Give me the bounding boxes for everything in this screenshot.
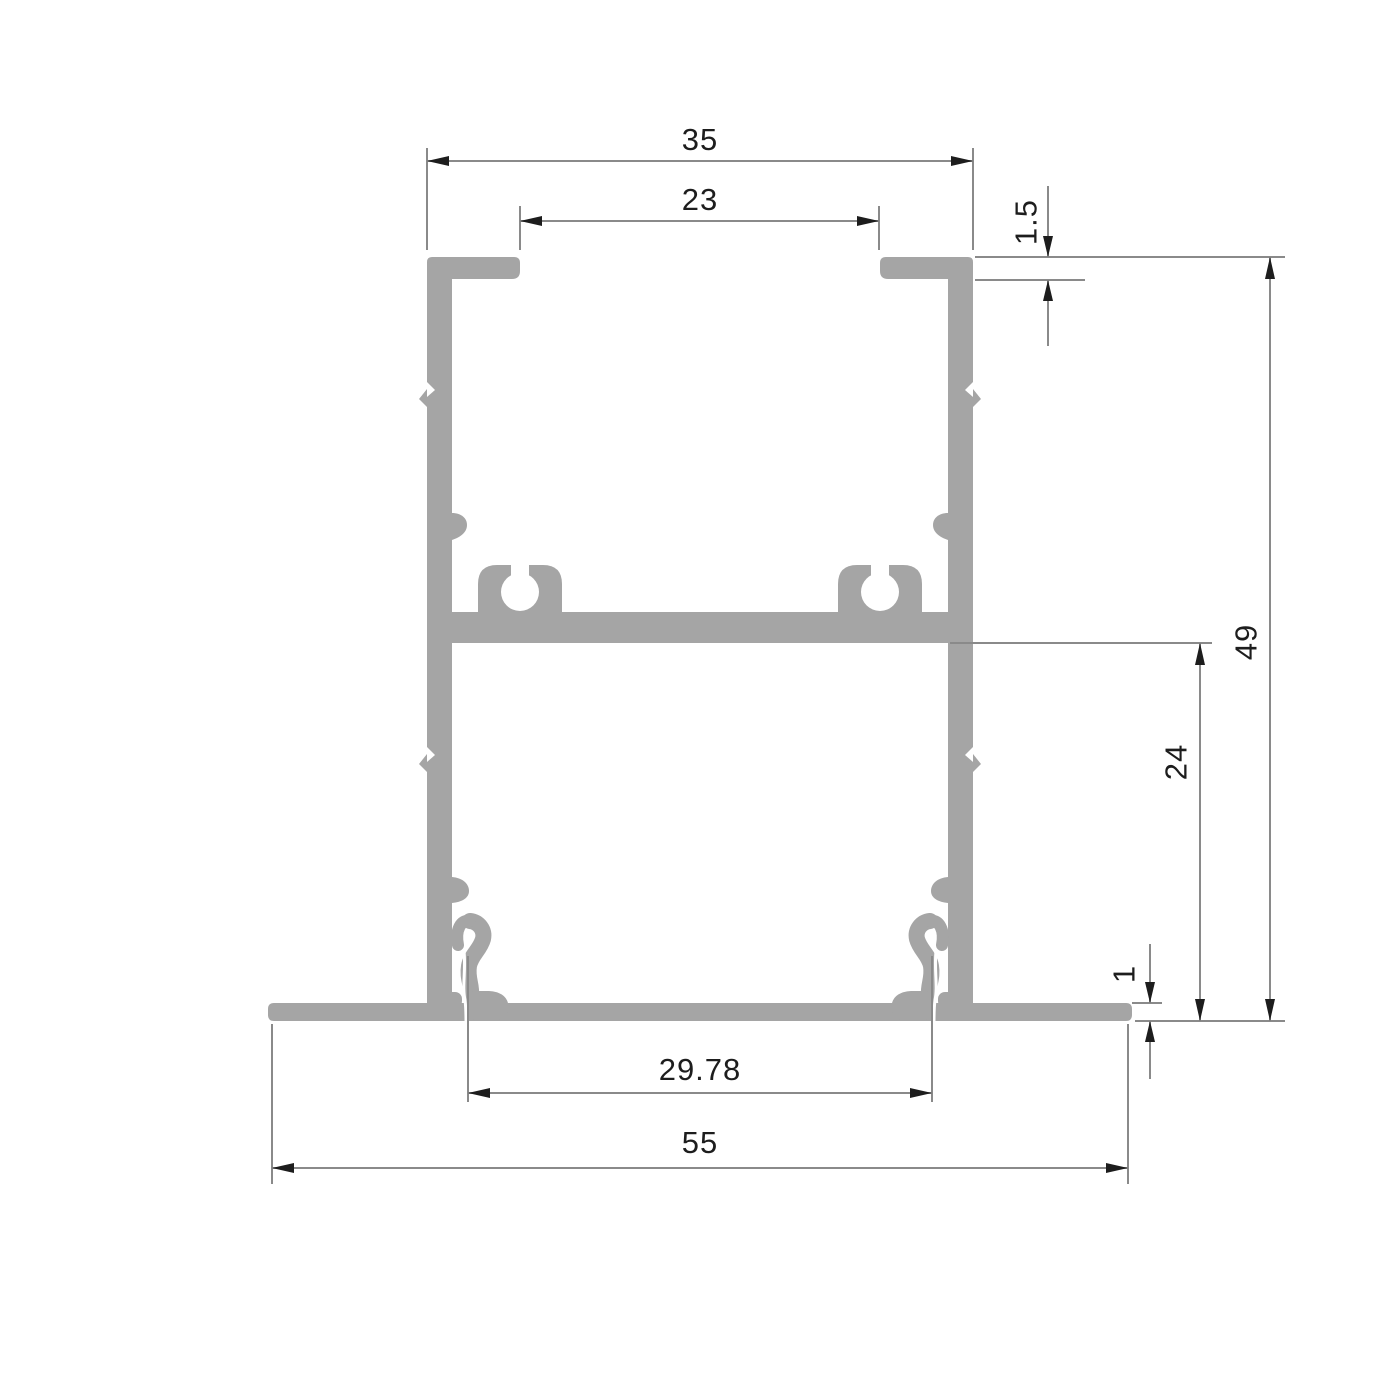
side-wall [427, 262, 452, 1007]
screw-boss-slot [511, 556, 529, 585]
arrowhead [272, 1163, 294, 1173]
arrowhead [1265, 257, 1275, 279]
arrowhead [1195, 643, 1205, 665]
dimension-top-opening-width: 23 [520, 182, 879, 250]
dim-label-lower-chamber-height: 24 [1159, 744, 1194, 780]
arrowhead [1043, 236, 1053, 257]
arrowhead [1145, 1021, 1155, 1042]
dimension-lower-chamber-height: 24 [950, 643, 1212, 1021]
dim-label-top-outer-width: 35 [682, 122, 718, 157]
dimension-bottom-opening-width: 29.78 [468, 956, 932, 1102]
dim-label-top-opening-width: 23 [682, 182, 718, 217]
dim-label-base-flange-thickness: 1 [1107, 965, 1142, 983]
spring-clip-hook [457, 921, 470, 945]
inner-tab-upper-notch [452, 543, 459, 556]
dim-label-top-flange-thickness: 1.5 [1009, 199, 1044, 245]
top-flange [427, 257, 520, 279]
dimension-overall-height: 49 [1135, 257, 1285, 1021]
dimension-overall-width: 55 [272, 1024, 1128, 1184]
outer-tooth-lower [419, 754, 427, 772]
profile-right-half [698, 257, 1132, 1022]
inner-tab-upper [452, 513, 467, 540]
dim-label-overall-width: 55 [682, 1125, 718, 1160]
drawing-canvas: 35 23 1.5 49 24 [0, 0, 1400, 1400]
spring-clip-foot [466, 991, 508, 1020]
arrowhead [1106, 1163, 1128, 1173]
arrowhead [910, 1088, 932, 1098]
spring-clip-body [469, 921, 484, 994]
middle-web [450, 612, 702, 643]
technical-drawing: 35 23 1.5 49 24 [0, 0, 1400, 1400]
outer-tooth-upper [419, 389, 427, 407]
arrowhead [1043, 280, 1053, 301]
arrowhead [427, 156, 449, 166]
wing-end-bump [434, 992, 462, 1008]
arrowhead [1265, 999, 1275, 1021]
arrowhead [520, 216, 542, 226]
profile-left-half [268, 257, 702, 1022]
arrowhead [1195, 999, 1205, 1021]
dimension-top-flange-thickness: 1.5 [975, 186, 1285, 346]
inner-tab-lower-notch [452, 906, 459, 919]
arrowhead [468, 1088, 490, 1098]
arrowhead [857, 216, 879, 226]
arrowhead [951, 156, 973, 166]
arrowhead [1145, 982, 1155, 1003]
dim-label-overall-height: 49 [1229, 624, 1264, 660]
inner-tab-lower [452, 877, 469, 903]
dim-label-bottom-opening-width: 29.78 [659, 1052, 742, 1087]
